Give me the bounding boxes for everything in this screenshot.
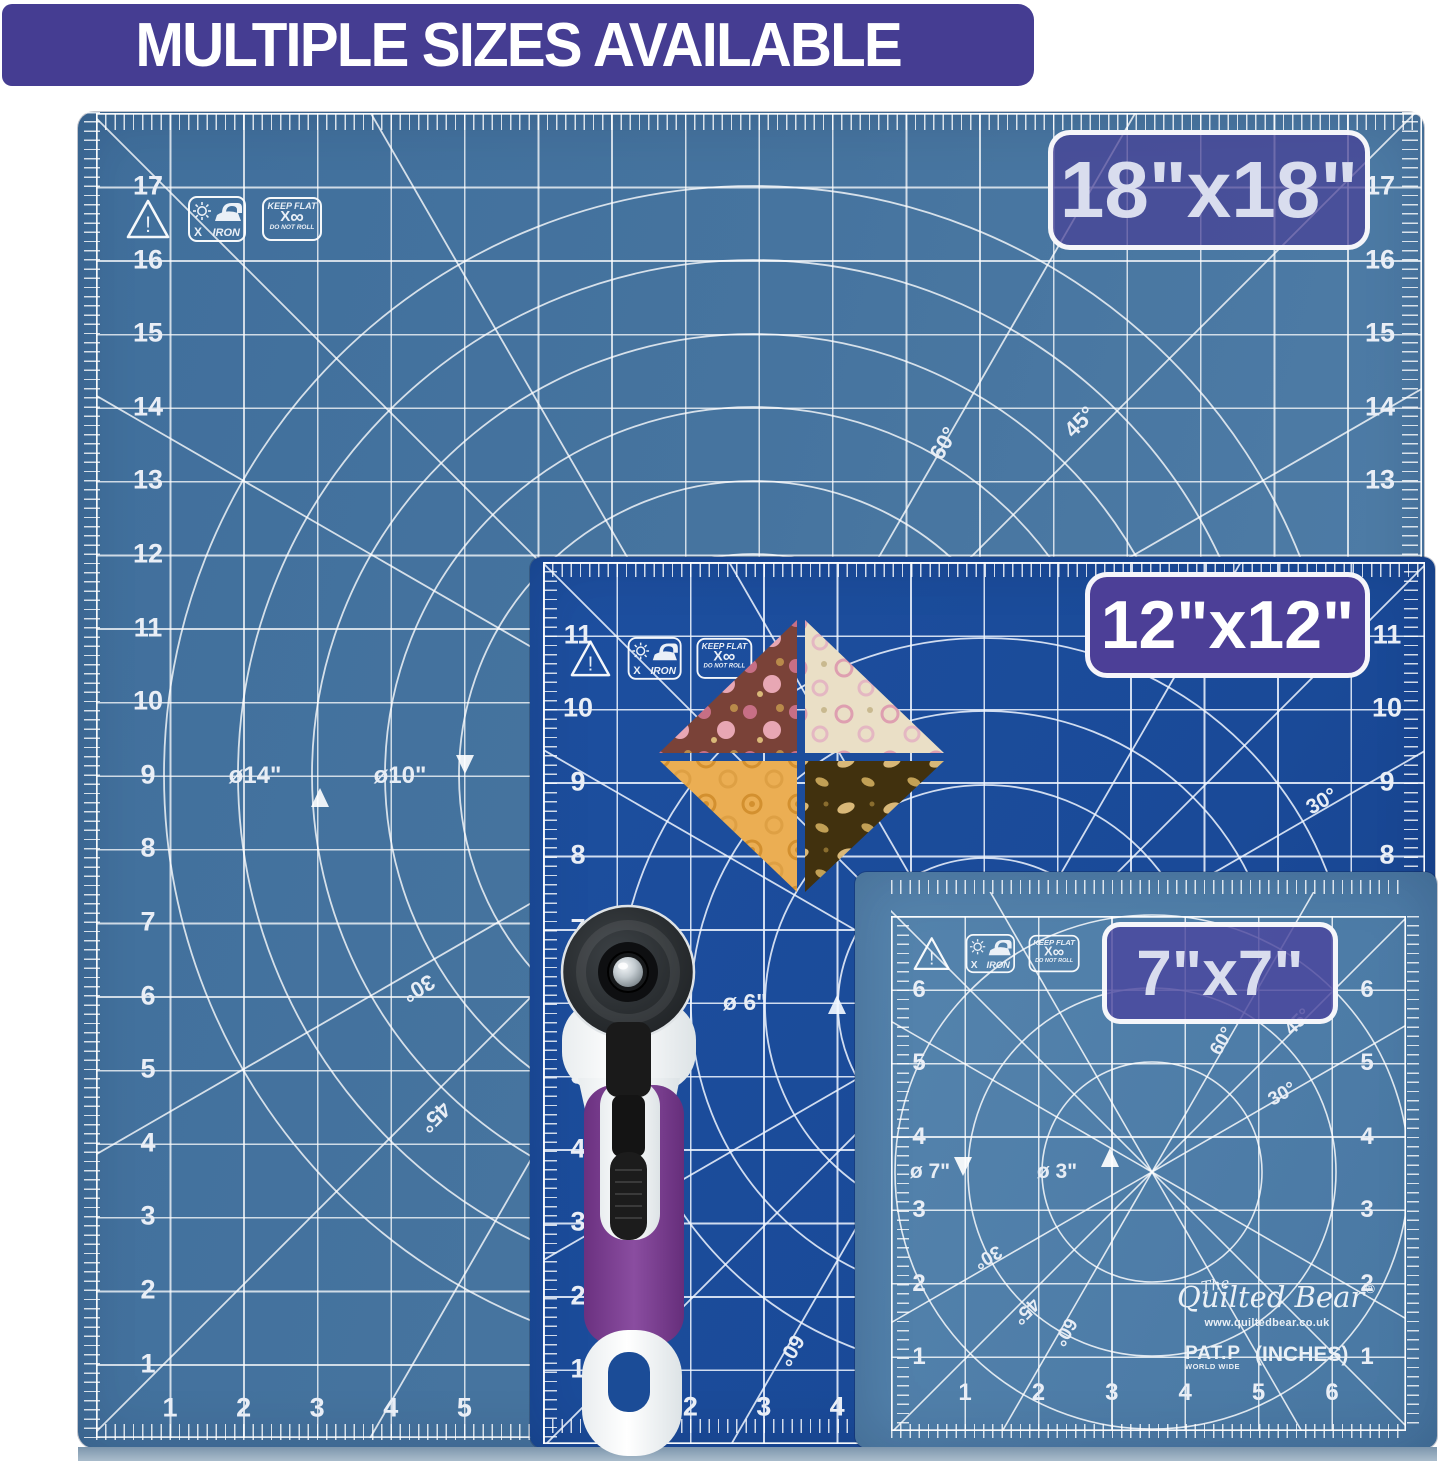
mat18-care-icons: ! — [126, 196, 326, 242]
warning-icon: ! — [126, 198, 170, 240]
tick-band-bottom — [891, 1424, 1406, 1438]
fabric-triangle-top-left — [659, 620, 797, 753]
size-badge-7x7: 7"x7" — [1102, 922, 1338, 1024]
fabric-quilt-block — [648, 608, 952, 904]
size-badge-12x12: 12"x12" — [1085, 572, 1370, 678]
no-iron-icon: X IRON — [966, 934, 1015, 973]
keep-flat-icon: KEEP FLAT X∞ DO NOT ROLL — [1029, 935, 1080, 972]
svg-text:!: ! — [588, 652, 594, 675]
guard-track — [612, 1095, 645, 1157]
cutter-blade — [562, 906, 694, 1038]
tick-band-top — [96, 114, 1422, 130]
tick-band-left — [84, 112, 100, 1442]
svg-text:!: ! — [929, 948, 934, 969]
svg-text:!: ! — [145, 212, 151, 237]
keep-flat-icon: KEEP FLAT X∞ DO NOT ROLL — [262, 197, 322, 241]
headline-banner: MULTIPLE SIZES AVAILABLE — [2, 4, 1034, 86]
fabric-triangle-top-right — [805, 620, 944, 753]
cutting-mat-7x7: ø 7" ø 3" 60° 45° 30° 30° 45° 60° 654321… — [855, 872, 1437, 1448]
units-label: (INCHES) — [1255, 1344, 1348, 1365]
brand-url: www.quiltedbear.co.uk — [1177, 1317, 1357, 1329]
warning-icon: ! — [570, 639, 611, 678]
worldwide-text: WORLD WIDE — [1185, 1363, 1241, 1371]
tick-band-right — [1407, 916, 1419, 1431]
no-iron-icon: X IRON — [188, 196, 246, 242]
mat7-care-icons: ! X IRON — [913, 934, 1083, 973]
warning-icon: ! — [913, 936, 950, 972]
blade-bolt — [613, 957, 643, 987]
mat-edge-strip — [78, 1447, 1437, 1461]
tick-band-left — [897, 916, 909, 1431]
size-badge-18x18: 18"x18" — [1048, 130, 1370, 250]
slider-button — [610, 1152, 647, 1240]
hanging-hole — [608, 1352, 650, 1412]
blade-guard — [606, 1022, 651, 1097]
patent-row: PAT.P WORLD WIDE (INCHES) — [1185, 1344, 1357, 1371]
tick-band-top — [891, 880, 1406, 894]
brand-logo: The Quilted Bear® www.quiltedbear.co.uk — [1177, 1280, 1357, 1329]
rotary-cutter — [555, 898, 705, 1463]
registered-mark: ® — [1364, 1282, 1376, 1296]
patent-text: PAT.P — [1185, 1344, 1241, 1363]
product-image: ø14" ø10" 60° 45° 30° 45° 17161514131211… — [0, 0, 1445, 1472]
fabric-triangle-bottom-left — [660, 761, 797, 892]
headline-text: MULTIPLE SIZES AVAILABLE — [135, 10, 900, 81]
